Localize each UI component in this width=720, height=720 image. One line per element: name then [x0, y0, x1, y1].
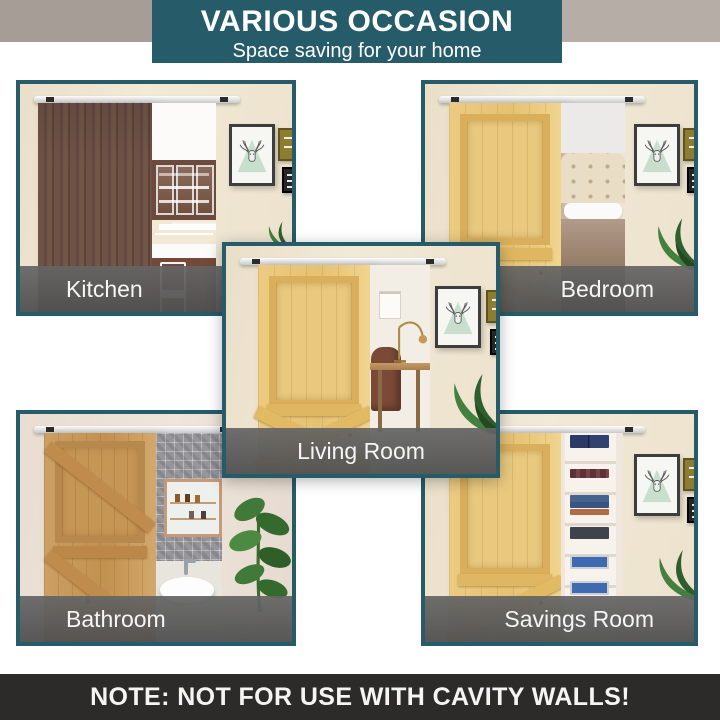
- desk-lamp-icon: [394, 313, 428, 369]
- black-frame-icon: [282, 167, 292, 193]
- footer-note-bar: NOTE: NOT FOR USE WITH CAVITY WALLS!: [0, 674, 720, 720]
- header-subtitle: Space saving for your home: [152, 40, 562, 63]
- room-label-band: Living Room: [226, 428, 496, 474]
- plant-leaf-icon: [428, 370, 496, 434]
- sliding-rail: [34, 426, 240, 433]
- faucet-icon: [184, 559, 188, 575]
- sliding-rail: [240, 258, 446, 265]
- header-banner: VARIOUS OCCASION Space saving for your h…: [152, 0, 562, 63]
- folded-clothes: [570, 495, 609, 508]
- room-label: Bathroom: [66, 606, 166, 633]
- top-left-gray-strip: [0, 0, 152, 42]
- room-label: Kitchen: [66, 276, 143, 303]
- mosaic-tile-wall: [156, 433, 222, 561]
- footer-note-text: NOTE: NOT FOR USE WITH CAVITY WALLS!: [90, 683, 630, 712]
- rail-clip: [46, 427, 54, 432]
- room-label-band: Savings Room: [425, 596, 694, 642]
- rail-clip: [625, 427, 633, 432]
- potted-plant-icon: [218, 478, 292, 614]
- black-frame-icon: [687, 497, 694, 523]
- rail-clip: [252, 259, 260, 264]
- bedroom-wall: [561, 103, 625, 153]
- yellow-frame-icon: [683, 128, 694, 161]
- folded-clothes: [570, 509, 609, 515]
- plant-leaf-icon: [636, 214, 694, 270]
- living-room-photo: Living Room: [226, 246, 496, 474]
- top-right-gray-strip: [562, 0, 720, 42]
- yellow-frame-icon: [683, 458, 694, 491]
- yellow-frame-icon: [486, 290, 496, 323]
- kitchen-counter: [152, 244, 216, 258]
- room-label: Living Room: [297, 438, 425, 465]
- rail-clip: [220, 97, 228, 102]
- tufted-headboard: [561, 153, 625, 203]
- deer-art-icon: [634, 124, 680, 186]
- black-frame-icon: [490, 329, 496, 355]
- plant-leaf-icon: [638, 546, 694, 600]
- yellow-frame-icon: [278, 128, 292, 161]
- rail-clip: [426, 259, 434, 264]
- product-promo-image: VARIOUS OCCASION Space saving for your h…: [0, 0, 720, 720]
- deer-art-icon: [229, 124, 275, 186]
- room-label: Bedroom: [561, 276, 654, 303]
- sliding-rail: [34, 96, 240, 103]
- mirror-shelf-unit: [164, 479, 222, 537]
- rail-clip: [625, 97, 633, 102]
- kitchen-upper-wall: [152, 103, 216, 160]
- rail-clip: [451, 97, 459, 102]
- black-frame-icon: [687, 167, 694, 193]
- header-title: VARIOUS OCCASION: [152, 6, 562, 38]
- storage-boxes: [570, 435, 609, 448]
- kitchen-glass-cabinet: [152, 160, 216, 220]
- deer-art-icon: [634, 454, 680, 516]
- folded-clothes: [570, 527, 609, 539]
- sliding-rail: [439, 96, 645, 103]
- folded-clothes: [570, 469, 609, 478]
- wire-basket: [570, 581, 609, 595]
- pillow: [564, 203, 622, 219]
- kitchen-shelf: [152, 220, 216, 244]
- rail-clip: [46, 97, 54, 102]
- deer-art-icon: [435, 286, 481, 348]
- panel-living-room: Living Room: [222, 242, 500, 478]
- wire-basket: [570, 555, 609, 569]
- room-label-band: Bathroom: [20, 596, 292, 642]
- room-label: Savings Room: [504, 606, 654, 633]
